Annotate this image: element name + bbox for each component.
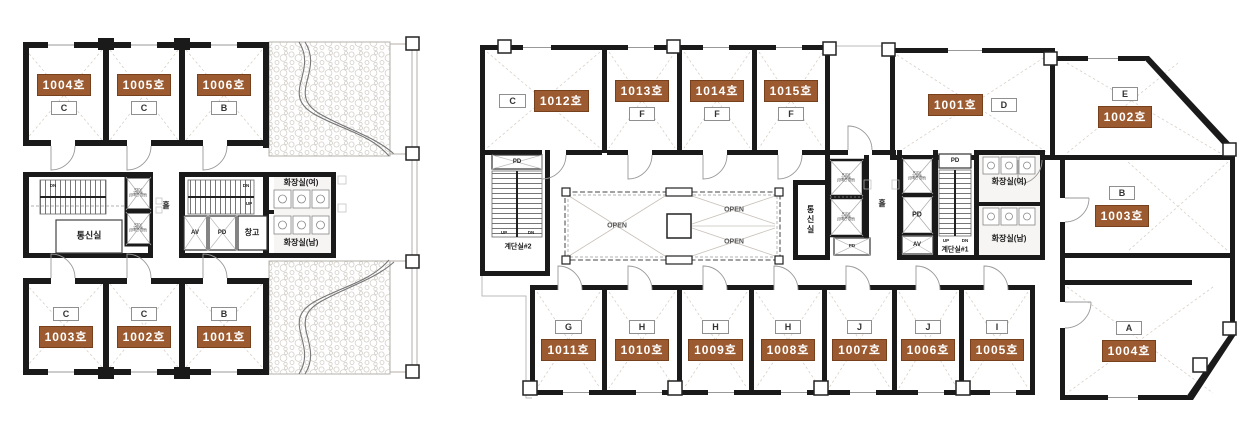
left-floorplan: 1004호 C 1005호 C 1006호 B C 1003호 C 1002호 … <box>18 36 423 381</box>
label-elevator: R.EV 17인승 (장애인 겸용) <box>837 213 855 221</box>
label-open: OPEN <box>607 223 627 230</box>
room-type-label: D <box>991 98 1018 112</box>
right-room-1014: 1014호 F <box>684 52 750 149</box>
label-stair1: 계단실#1 <box>941 247 968 254</box>
atrium <box>562 188 783 264</box>
label-wc-women: 화장실(여) <box>992 178 1027 186</box>
room-type-label: H <box>629 320 656 334</box>
room-number-badge: 1008호 <box>761 339 816 361</box>
right-floorplan: C 1012호 1013호 F 1014호 F 1015호 F 1001호 D … <box>478 36 1240 416</box>
room-number-badge: 1001호 <box>197 326 252 348</box>
floorplan-canvas: 1004호 C 1005호 C 1006호 B C 1003호 C 1002호 … <box>0 0 1240 432</box>
left-room-1003: C 1003호 <box>30 285 102 369</box>
room-type-label: C <box>131 101 158 115</box>
elevator-shafts <box>126 177 151 245</box>
label-wc-women: 화장실(여) <box>284 179 319 187</box>
right-room-1008: H 1008호 <box>756 292 820 388</box>
room-number-badge: 1015호 <box>764 80 819 102</box>
room-number-badge: 1013호 <box>615 80 670 102</box>
right-room-1010: H 1010호 <box>609 292 675 388</box>
room-number-badge: 1005호 <box>970 339 1025 361</box>
room-type-label: F <box>629 107 655 121</box>
right-room-1011: G 1011호 <box>537 292 600 388</box>
left-room-1006: 1006호 B <box>186 49 262 140</box>
room-type-label: B <box>1109 186 1136 200</box>
right-frame-lines <box>390 38 418 378</box>
label-open: OPEN <box>724 207 744 214</box>
room-type-label: B <box>211 307 238 321</box>
room-type-label: A <box>1116 321 1143 335</box>
room-type-label: F <box>704 107 730 121</box>
label-up: UP <box>246 202 252 207</box>
right-room-1007: J 1007호 <box>829 292 890 388</box>
label-pd: PD <box>849 244 855 249</box>
label-elevator: R.EV 17인승 (장애인 겸용) <box>837 174 855 182</box>
room-type-label: J <box>847 320 872 334</box>
room-number-badge: 1012호 <box>534 90 589 112</box>
right-room-1004: A 1004호 <box>1070 290 1188 392</box>
left-room-1004: 1004호 C <box>24 49 104 140</box>
right-room-1005: I 1005호 <box>966 292 1028 388</box>
dim-marks <box>864 180 899 189</box>
label-elevator: R.EV 17인승 (장애인 겸용) <box>908 172 926 180</box>
room-number-badge: 1005호 <box>117 74 172 96</box>
label-wc-men: 화장실(남) <box>284 239 319 247</box>
label-dn: DN <box>962 239 969 244</box>
label-dn: DN <box>243 184 250 189</box>
room-type-label: J <box>915 320 940 334</box>
room-type-label: C <box>131 307 158 321</box>
room-type-label: C <box>53 307 80 321</box>
room-type-label: E <box>1112 87 1138 101</box>
right-room-1001: 1001호 D <box>897 55 1048 154</box>
left-room-1002: C 1002호 <box>110 285 178 369</box>
room-type-label: G <box>555 320 582 334</box>
right-room-1003: B 1003호 <box>1067 162 1177 250</box>
label-elevator: P.EV 15인승 (장애인 겸용) <box>129 189 147 197</box>
room-type-label: F <box>778 107 804 121</box>
label-up: UP <box>943 239 949 244</box>
label-stair2: 계단실#2 <box>504 244 531 251</box>
label-open: OPEN <box>724 239 744 246</box>
left-room-1001: B 1001호 <box>186 285 262 369</box>
room-type-label: I <box>986 320 1009 334</box>
label-hall: 홀 <box>878 200 885 208</box>
room-number-badge: 1014호 <box>690 80 745 102</box>
right-room-1006: J 1006호 <box>899 292 957 388</box>
room-number-badge: 1010호 <box>615 339 670 361</box>
label-dn: DN <box>528 231 535 236</box>
room-number-badge: 1011호 <box>541 339 595 361</box>
room-type-label: H <box>775 320 802 334</box>
right-room-1015: 1015호 F <box>759 52 823 149</box>
elevator-shafts <box>830 158 933 236</box>
label-dn: DN <box>50 184 57 189</box>
label-pd: PD <box>513 159 521 165</box>
room-number-badge: 1003호 <box>39 326 94 348</box>
room-type-label: C <box>499 94 526 108</box>
label-hall: 홀 <box>162 202 169 210</box>
label-elevator: P.EV 15인승 (장애인 겸용) <box>129 224 147 232</box>
right-room-1009: H 1009호 <box>684 292 747 388</box>
right-room-1012: C 1012호 <box>487 52 601 149</box>
room-number-badge: 1006호 <box>901 339 956 361</box>
left-room-1005: 1005호 C <box>110 49 178 140</box>
terrace-bottom <box>269 261 390 374</box>
room-number-badge: 1001호 <box>928 94 983 116</box>
room-number-badge: 1002호 <box>1098 106 1153 128</box>
room-number-badge: 1007호 <box>832 339 887 361</box>
label-av: AV <box>913 242 921 248</box>
room-type-label: B <box>211 101 238 115</box>
right-room-1013: 1013호 F <box>609 52 675 149</box>
room-type-label: H <box>702 320 729 334</box>
label-pd: PD <box>951 158 959 164</box>
room-number-badge: 1004호 <box>1102 340 1157 362</box>
room-number-badge: 1003호 <box>1095 205 1150 227</box>
label-wc-men: 화장실(남) <box>992 235 1027 243</box>
label-storage: 창고 <box>245 229 260 237</box>
label-av: AV <box>191 230 199 236</box>
room-number-badge: 1006호 <box>197 74 252 96</box>
right-room-1002: E 1002호 <box>1067 63 1183 151</box>
label-up: UP <box>501 231 507 236</box>
room-number-badge: 1002호 <box>117 326 172 348</box>
room-number-badge: 1009호 <box>688 339 743 361</box>
label-comm-room: 통신실 <box>77 232 102 241</box>
label-pd: PD <box>912 212 922 219</box>
label-comm-room: 통신실 <box>806 205 814 235</box>
room-type-label: C <box>51 101 78 115</box>
label-pd: PD <box>218 230 226 236</box>
room-number-badge: 1004호 <box>37 74 92 96</box>
